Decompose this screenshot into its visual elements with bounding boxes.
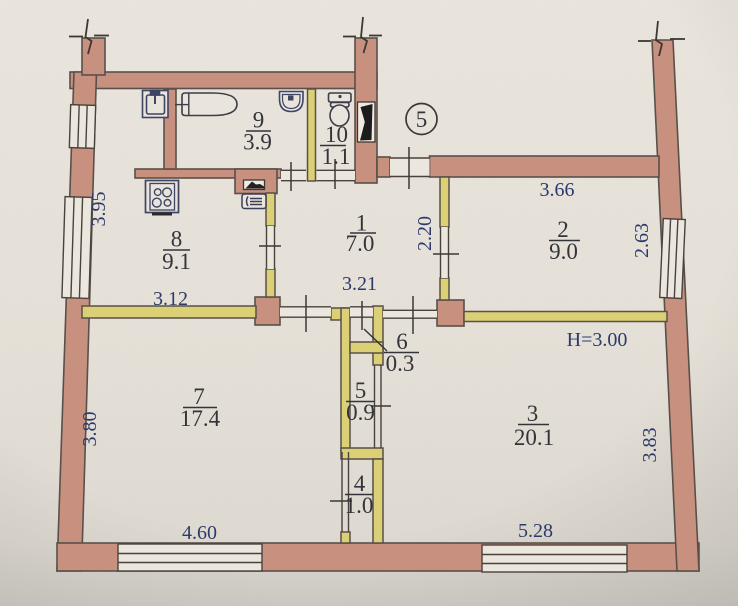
svg-text:3.12: 3.12 (153, 288, 188, 310)
svg-text:2.20: 2.20 (414, 216, 436, 251)
svg-text:17.4: 17.4 (180, 406, 221, 431)
svg-text:9.1: 9.1 (162, 249, 191, 274)
svg-text:0.9: 0.9 (346, 400, 375, 425)
svg-text:5: 5 (416, 107, 428, 132)
svg-text:7.0: 7.0 (346, 231, 375, 256)
svg-text:8: 8 (171, 227, 183, 252)
svg-text:4.60: 4.60 (182, 522, 217, 544)
svg-text:3.80: 3.80 (79, 412, 101, 447)
svg-text:3.95: 3.95 (88, 192, 110, 227)
svg-text:3.21: 3.21 (342, 273, 377, 295)
svg-text:3: 3 (527, 401, 539, 426)
svg-text:5.28: 5.28 (518, 520, 553, 542)
svg-text:2.63: 2.63 (631, 223, 653, 258)
svg-text:1.0: 1.0 (345, 493, 374, 518)
svg-text:0.3: 0.3 (386, 351, 415, 376)
svg-text:1.1: 1.1 (322, 144, 351, 169)
svg-text:9.0: 9.0 (549, 239, 578, 264)
svg-text:3.66: 3.66 (540, 179, 575, 201)
svg-text:3.83: 3.83 (639, 428, 661, 463)
svg-text:H=3.00: H=3.00 (567, 329, 628, 351)
svg-text:20.1: 20.1 (514, 425, 554, 450)
svg-text:3.9: 3.9 (243, 130, 272, 155)
